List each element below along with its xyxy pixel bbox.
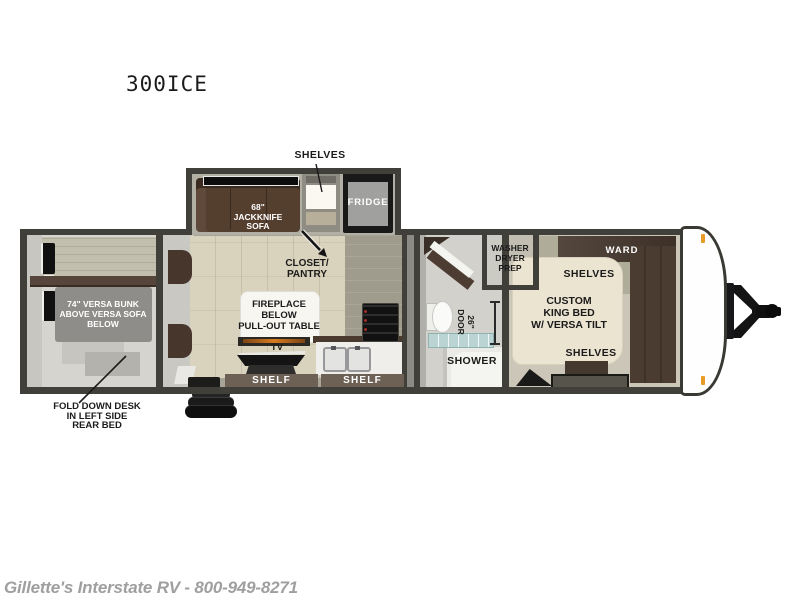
ward-label: WARD [597,246,647,257]
bedroom-shelves-top-label: SHELVES [557,269,621,281]
desk-callout-label: FOLD DOWN DESK IN LEFT SIDE REAR BED [45,402,149,431]
tv-label: TV [258,343,296,354]
wall-top-rear [20,229,192,235]
sink-right [347,347,371,372]
wall-rear-left [20,229,27,393]
marker-light-bottom [701,376,705,385]
sink-left [323,347,347,372]
stove-knob-3 [364,328,367,331]
door-dimension-cap-bottom [490,343,500,345]
wardrobe-right-column [630,246,676,383]
shelves-cabinet-inner [306,185,336,209]
door-dimension-cap-top [490,301,500,303]
wall-top-front [395,229,692,235]
sink-left-faucet [331,346,336,350]
stove-knob-1 [364,310,367,313]
sofa-window-bar [203,176,299,186]
dealer-watermark: Gillette's Interstate RV - 800-949-8271 [4,578,298,598]
door-dimension-line [494,302,496,344]
shower-label: SHOWER [442,356,502,368]
stove-knob-2 [364,319,367,322]
rear-wood-planks [42,237,156,278]
washer-prep-label: WASHER DRYER PREP [483,243,537,273]
sink-right-faucet [355,346,360,350]
tv-base [246,365,296,374]
shelves-callout-label: SHELVES [288,150,352,162]
front-cap [680,226,727,396]
door-size-label: 26" DOOR [453,300,475,344]
bunk-label: 74" VERSA BUNK ABOVE VERSA SOFA BELOW [53,300,153,329]
fridge-label: FRIDGE [343,198,393,209]
floorplan-page: 300ICE [0,0,800,600]
marker-light-top [701,234,705,243]
slide-wall-top [186,168,401,174]
stove [362,303,399,342]
wall-rear-divider [156,229,163,393]
wedge-cabinet-bottom [168,324,192,358]
bedroom-shelves-bottom-label: SHELVES [559,348,623,360]
wall-living-bath-inner [414,235,420,387]
shelf-right-bar: SHELF [321,374,404,387]
shelves-cabinet-lower [306,212,336,225]
slide-wall-right [395,168,401,235]
fireplace-table-label: FIREPLACE BELOW PULL-OUT TABLE [227,299,331,333]
toilet-bowl [432,301,453,333]
rear-left-wall-face [27,235,42,387]
wall-living-bath-gap [407,235,414,387]
entry-step-3 [185,405,237,418]
closet-pantry-label: CLOSET/ PANTRY [272,258,342,280]
rear-sofa-step [85,352,140,376]
king-bed-label: CUSTOM KING BED W/ VERSA TILT [517,296,621,332]
rear-shelf [30,276,156,287]
wall-bottom [20,387,692,394]
sofa-label: 68" JACKKNIFE SOFA [206,203,310,232]
wedge-cabinet-top [168,250,192,284]
page-title: 300ICE [126,72,208,96]
washer-box-wall-bottom [482,285,539,290]
slide-wall-left [186,168,192,235]
shelves-cabinet-top [306,176,336,183]
shelf-left-bar: SHELF [225,374,318,387]
tv [237,355,305,366]
rear-window-1 [41,243,55,274]
